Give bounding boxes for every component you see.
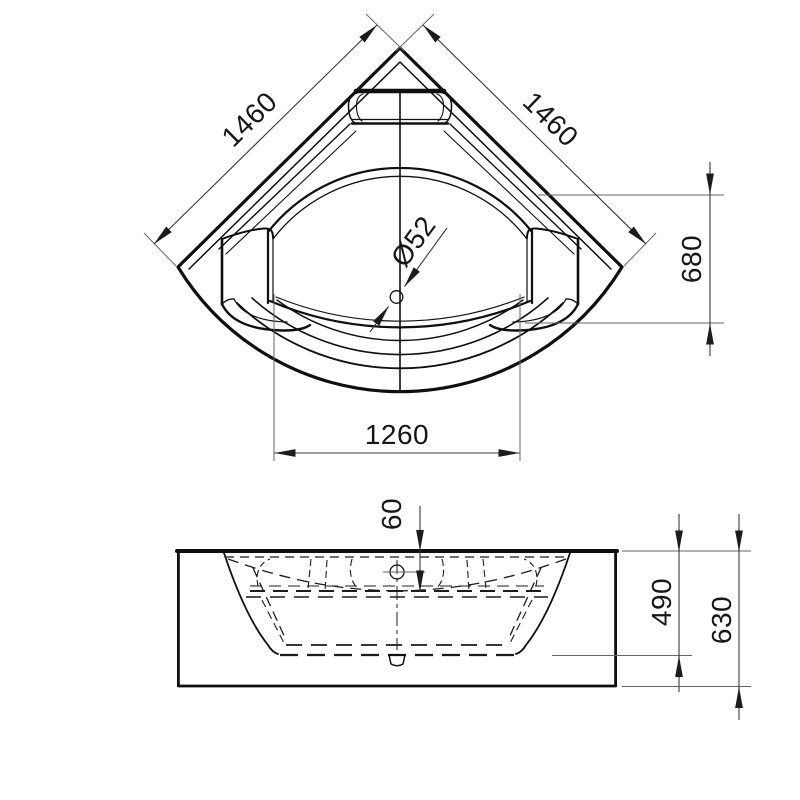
dim-label-60: 60: [376, 498, 407, 530]
technical-drawing-page: 1460 1460 680 1260 Ø52 60 490 630: [0, 0, 800, 800]
dim-label-1260: 1260: [365, 419, 429, 450]
dim-label-680: 680: [676, 235, 707, 283]
bathtub-technical-drawing: 1460 1460 680 1260 Ø52 60 490 630: [0, 0, 800, 800]
dim-label-490: 490: [646, 578, 677, 626]
dim-label-630: 630: [706, 596, 737, 644]
